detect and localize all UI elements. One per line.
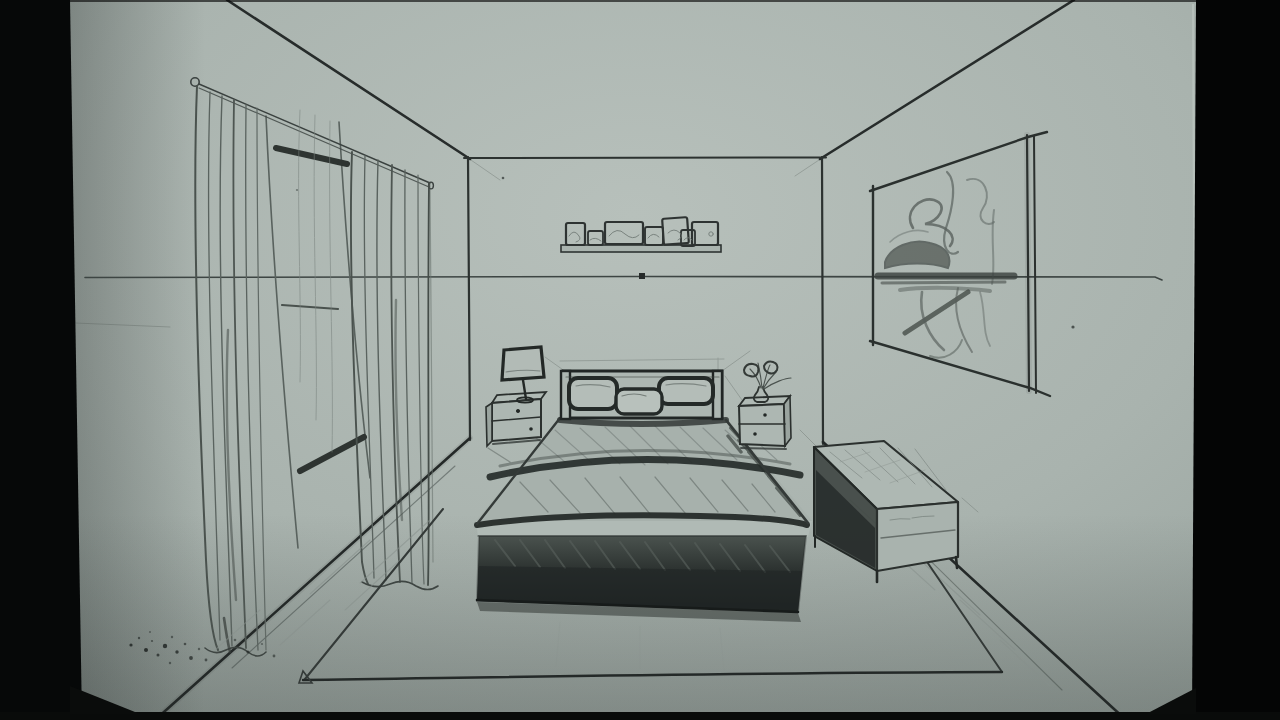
lamp-shade [502,347,544,380]
pillow-right [659,378,713,404]
nightstand-right-front [739,404,785,446]
right-dark-edge [1192,0,1280,720]
drawer-knob [763,413,767,417]
mattress-band [476,521,812,537]
nightstand-left-side [486,403,492,446]
sketch-photo [0,0,1280,720]
top-hairline [70,0,1196,2]
drawer-knob [516,409,520,413]
drawer-knob [753,432,757,436]
bottom-dark-edge [0,712,1280,720]
bedroom-sketch-canvas [0,0,1280,720]
wall-corner-right [822,157,823,444]
nightstand-right-side [784,396,791,446]
left-dark-edge [0,0,82,720]
drawer-knob [529,427,533,431]
back-wall-top-edge [464,158,826,159]
pillow-center [616,389,662,414]
vanishing-point-dot [639,273,645,279]
pillow-left [569,378,617,409]
